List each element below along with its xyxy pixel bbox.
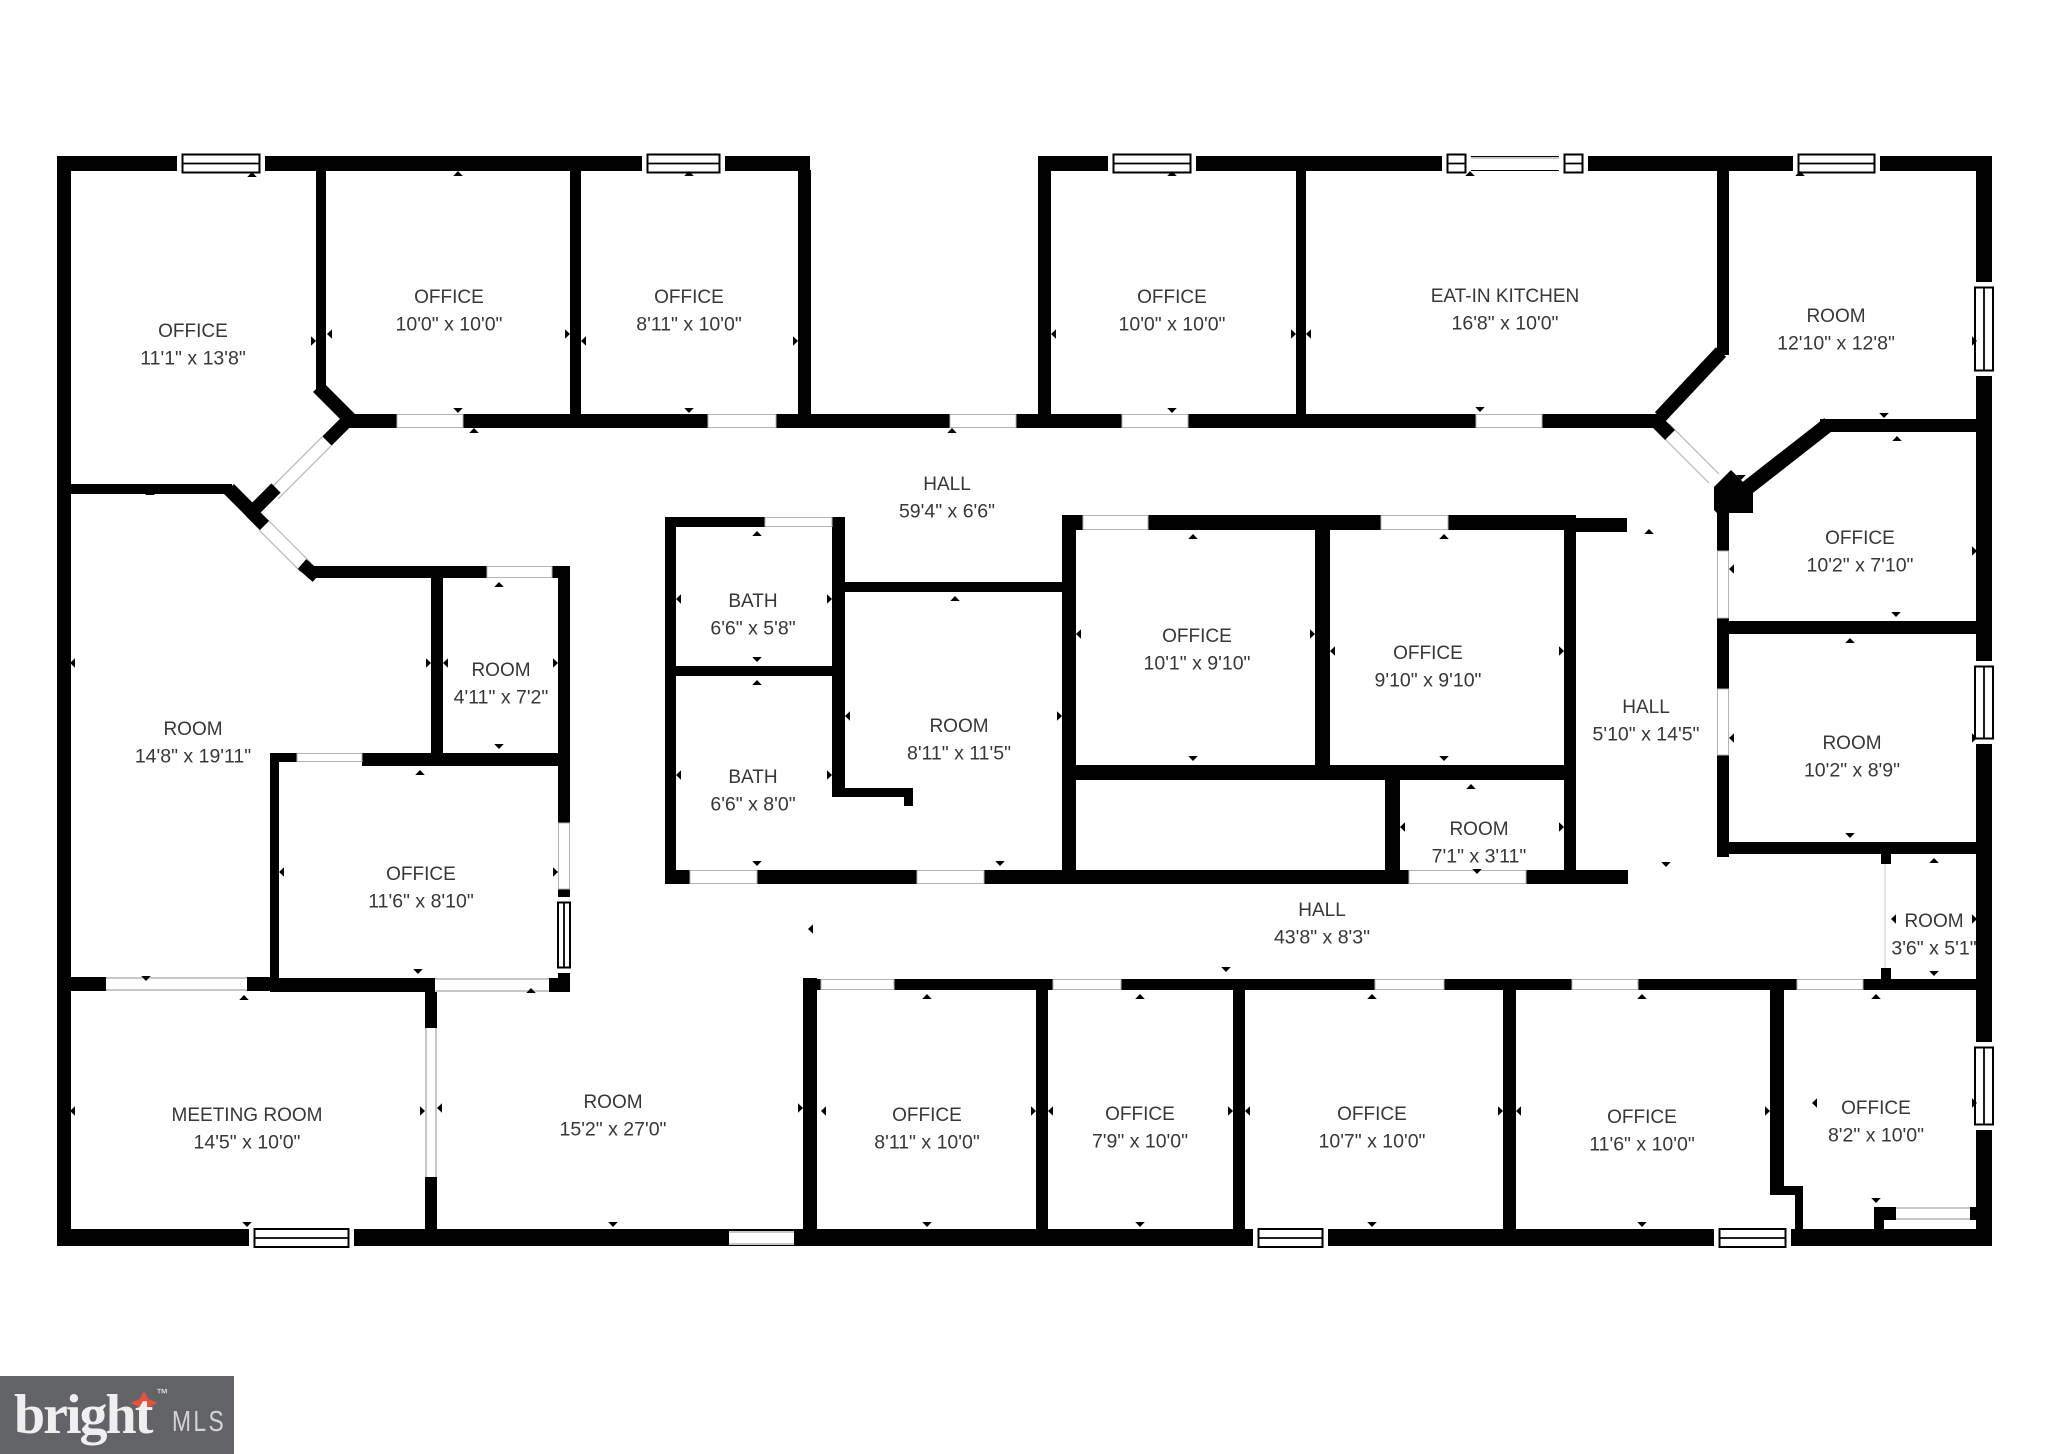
svg-text:9'10" x 9'10": 9'10" x 9'10" [1375, 670, 1482, 692]
svg-text:8'2" x 10'0": 8'2" x 10'0" [1828, 1125, 1924, 1147]
svg-text:ROOM: ROOM [583, 1092, 642, 1113]
svg-text:HALL: HALL [1622, 697, 1670, 718]
svg-text:OFFICE: OFFICE [1137, 287, 1207, 308]
svg-text:OFFICE: OFFICE [1825, 528, 1895, 549]
svg-text:ROOM: ROOM [1449, 819, 1508, 840]
svg-text:10'1" x 9'10": 10'1" x 9'10" [1144, 653, 1251, 675]
svg-text:OFFICE: OFFICE [386, 864, 456, 885]
svg-text:8'11" x 10'0": 8'11" x 10'0" [874, 1132, 980, 1154]
svg-text:OFFICE: OFFICE [1162, 626, 1232, 647]
svg-text:10'2" x 7'10": 10'2" x 7'10" [1807, 555, 1914, 577]
svg-text:OFFICE: OFFICE [158, 321, 228, 342]
svg-text:8'11" x 10'0": 8'11" x 10'0" [636, 314, 742, 336]
svg-text:12'10" x 12'8": 12'10" x 12'8" [1777, 333, 1895, 355]
svg-text:10'2" x 8'9": 10'2" x 8'9" [1804, 760, 1900, 782]
svg-text:10'0" x 10'0": 10'0" x 10'0" [1119, 314, 1226, 336]
svg-text:ROOM: ROOM [1822, 733, 1881, 754]
svg-text:43'8" x 8'3": 43'8" x 8'3" [1274, 927, 1370, 949]
svg-text:7'9" x 10'0": 7'9" x 10'0" [1092, 1131, 1188, 1153]
svg-text:OFFICE: OFFICE [414, 287, 484, 308]
svg-text:ROOM: ROOM [471, 660, 530, 681]
svg-text:OFFICE: OFFICE [892, 1105, 962, 1126]
svg-text:OFFICE: OFFICE [1607, 1107, 1677, 1128]
svg-text:16'8" x 10'0": 16'8" x 10'0" [1452, 313, 1559, 335]
svg-text:HALL: HALL [923, 474, 971, 495]
svg-text:5'10" x 14'5": 5'10" x 14'5" [1593, 724, 1700, 746]
svg-text:ROOM: ROOM [163, 719, 222, 740]
svg-text:MEETING ROOM: MEETING ROOM [172, 1105, 323, 1126]
svg-text:10'0" x 10'0": 10'0" x 10'0" [396, 314, 503, 336]
svg-text:14'5" x 10'0": 14'5" x 10'0" [194, 1132, 301, 1154]
svg-text:59'4" x 6'6": 59'4" x 6'6" [899, 501, 995, 523]
svg-text:OFFICE: OFFICE [1841, 1098, 1911, 1119]
svg-text:14'8" x 19'11": 14'8" x 19'11" [135, 746, 251, 768]
svg-text:ROOM: ROOM [929, 716, 988, 737]
svg-text:6'6" x 5'8": 6'6" x 5'8" [710, 618, 795, 640]
svg-text:3'6" x 5'1": 3'6" x 5'1" [1891, 938, 1976, 960]
svg-text:™: ™ [156, 1386, 168, 1400]
svg-text:HALL: HALL [1298, 900, 1346, 921]
svg-text:BATH: BATH [728, 591, 777, 612]
svg-text:ROOM: ROOM [1806, 306, 1865, 327]
svg-text:4'11" x 7'2": 4'11" x 7'2" [454, 687, 549, 709]
svg-text:11'6" x 10'0": 11'6" x 10'0" [1589, 1134, 1695, 1156]
svg-text:11'1" x 13'8": 11'1" x 13'8" [140, 348, 246, 370]
svg-text:ROOM: ROOM [1904, 911, 1963, 932]
svg-text:MLS: MLS [172, 1407, 226, 1438]
svg-text:6'6" x 8'0": 6'6" x 8'0" [710, 794, 795, 816]
svg-text:OFFICE: OFFICE [1337, 1104, 1407, 1125]
svg-text:10'7" x 10'0": 10'7" x 10'0" [1319, 1131, 1426, 1153]
svg-text:bright: bright [14, 1384, 154, 1446]
svg-text:15'2" x 27'0": 15'2" x 27'0" [560, 1119, 667, 1141]
svg-text:BATH: BATH [728, 767, 777, 788]
svg-text:OFFICE: OFFICE [654, 287, 724, 308]
svg-text:OFFICE: OFFICE [1105, 1104, 1175, 1125]
svg-text:OFFICE: OFFICE [1393, 643, 1463, 664]
svg-text:11'6" x 8'10": 11'6" x 8'10" [368, 891, 474, 913]
svg-text:EAT-IN KITCHEN: EAT-IN KITCHEN [1431, 286, 1580, 307]
svg-text:8'11" x 11'5": 8'11" x 11'5" [907, 743, 1011, 765]
svg-text:7'1" x 3'11": 7'1" x 3'11" [1432, 846, 1527, 868]
